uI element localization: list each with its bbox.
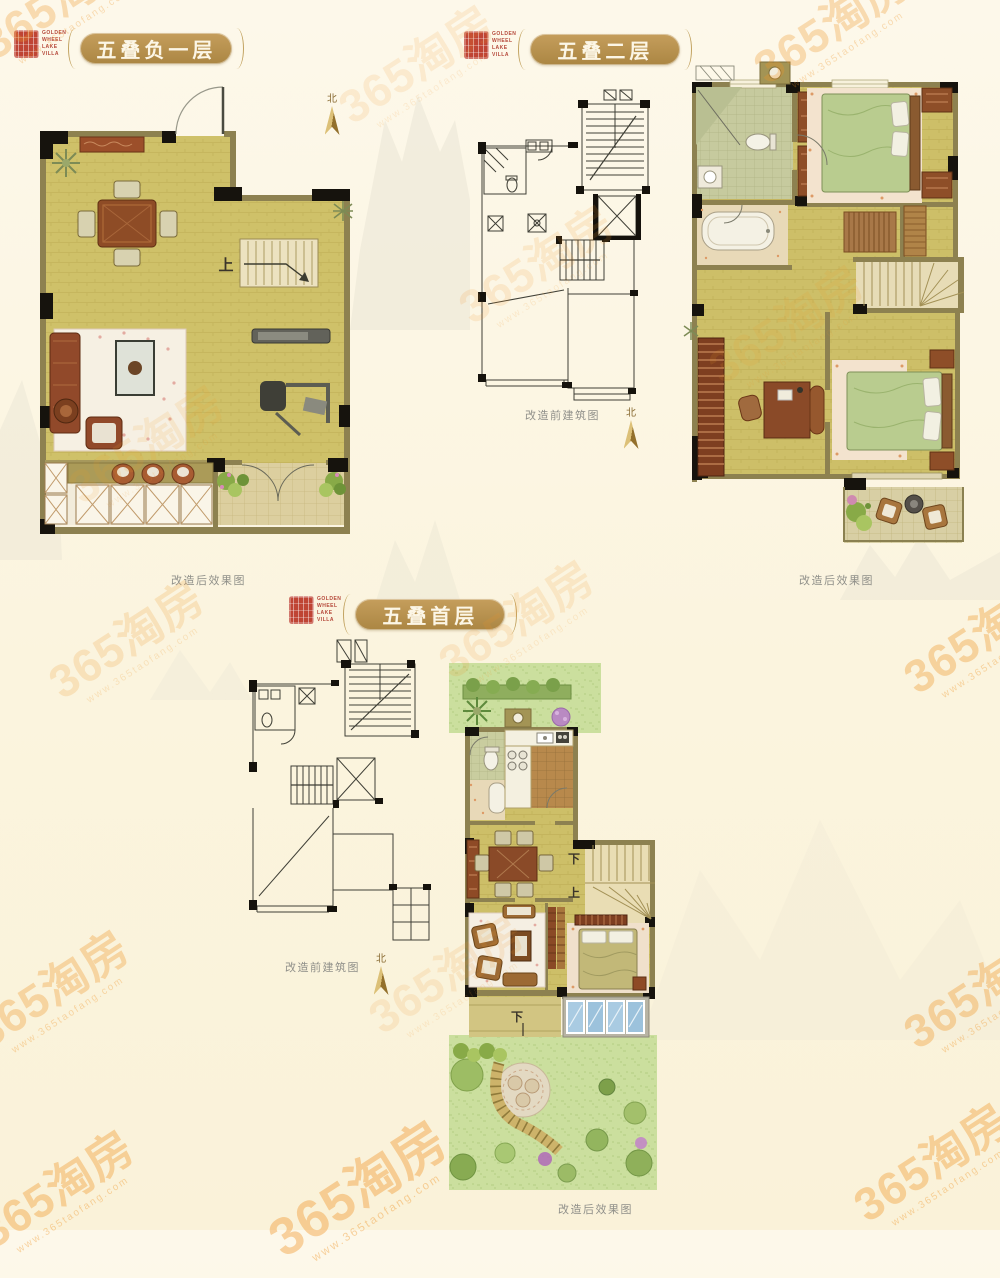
watermark: 365淘房www.365taofang.com <box>0 923 144 1067</box>
living-room-set <box>50 329 186 451</box>
floor-title-second: 五叠二层 <box>530 34 680 65</box>
caption-second-after: 改造后效果图 <box>799 572 874 588</box>
bedroom <box>567 915 649 993</box>
seal-english-text: GOLDENWHEEL LAKEVILLA <box>492 31 516 58</box>
title-arc-left <box>343 594 358 635</box>
plan-second-before <box>464 88 664 403</box>
plan-basement-after: 上 <box>28 83 368 563</box>
caption-basement-after: 改造后效果图 <box>171 572 246 588</box>
caption-first-before: 改造前建筑图 <box>285 959 360 975</box>
stair-down-label: 下 <box>568 852 580 866</box>
plan-first-after: 下 上 下 <box>447 635 662 1195</box>
floor-title-first: 五叠首层 <box>355 599 505 630</box>
watermark: 365淘房www.365taofang.com <box>896 568 1000 712</box>
floor-title-basement: 五叠负一层 <box>80 33 232 64</box>
north-arrow-icon <box>325 106 340 135</box>
north-arrow-icon <box>624 420 639 449</box>
niche-basin <box>513 713 523 723</box>
watermark: 365淘房www.365taofang.com <box>896 923 1000 1067</box>
title-arc-left <box>518 29 533 70</box>
step-down-label: 下 <box>511 1010 523 1024</box>
stair-up-label: 上 <box>218 257 233 274</box>
caption-first-after: 改造后效果图 <box>558 1201 633 1217</box>
living-room-set <box>469 905 545 987</box>
plan-second-after <box>682 60 967 565</box>
plant-icon <box>52 149 80 177</box>
section-header-basement: GOLDENWHEEL LAKEVILLA 五叠负一层 <box>14 30 232 64</box>
wall-columns <box>478 100 650 394</box>
seal-stamp-icon <box>464 31 489 59</box>
brand-seal: GOLDENWHEEL LAKEVILLA <box>14 30 66 58</box>
section-header-second: GOLDENWHEEL LAKEVILLA 五叠二层 <box>464 31 680 65</box>
title-arc-right <box>229 28 244 69</box>
seal-stamp-icon <box>289 596 314 624</box>
seal-english-text: GOLDENWHEEL LAKEVILLA <box>317 596 341 623</box>
plan-first-before <box>237 638 432 943</box>
seal-english-text: GOLDENWHEEL LAKEVILLA <box>42 30 66 57</box>
caption-second-before: 改造前建筑图 <box>525 407 600 423</box>
north-indicator-second: 北 <box>617 404 645 449</box>
section-header-first: GOLDENWHEEL LAKEVILLA 五叠首层 <box>289 596 505 630</box>
watermark: 365淘房www.365taofang.com <box>260 1112 465 1278</box>
seal-stamp-icon <box>14 30 39 58</box>
north-label: 北 <box>626 404 636 419</box>
brand-seal: GOLDENWHEEL LAKEVILLA <box>289 596 341 624</box>
purple-tree-icon <box>552 708 570 726</box>
lightwell-glass <box>563 997 649 1037</box>
title-arc-right <box>502 594 517 635</box>
watermark: 365淘房www.365taofang.com <box>0 1123 149 1267</box>
north-arrow-icon <box>374 966 389 995</box>
watermark: 365淘房www.365taofang.com <box>846 1096 1000 1240</box>
entry-door <box>176 87 223 134</box>
watermark: 365淘房www.365taofang.com <box>41 573 219 717</box>
title-arc-left <box>68 28 83 69</box>
bedroom-south <box>832 350 954 470</box>
niche-basin <box>769 67 781 79</box>
bookshelf <box>698 338 724 476</box>
north-label: 北 <box>376 950 386 965</box>
north-indicator-first: 北 <box>367 950 395 995</box>
stair-up-label: 上 <box>568 885 580 900</box>
brand-seal: GOLDENWHEEL LAKEVILLA <box>464 31 516 59</box>
north-indicator-basement: 北 <box>318 90 346 135</box>
palm-tree-icon <box>463 697 491 725</box>
console-table <box>80 137 144 152</box>
north-label: 北 <box>327 90 337 105</box>
